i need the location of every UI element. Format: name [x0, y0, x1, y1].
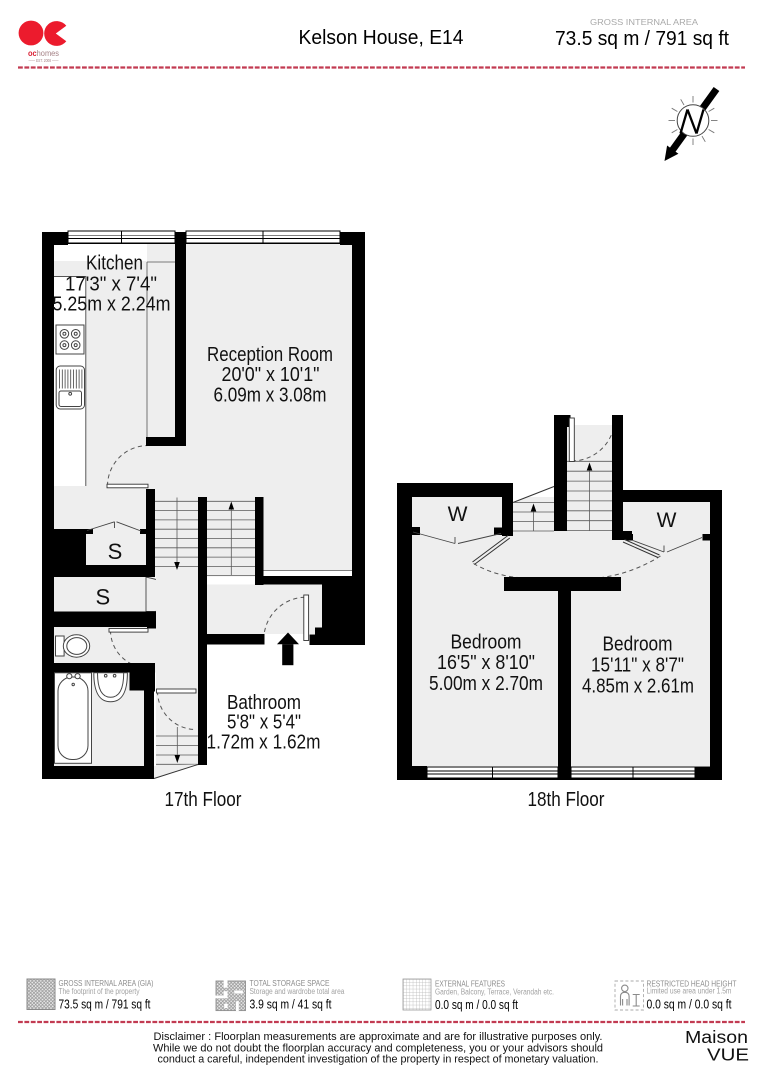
- svg-text:17th Floor: 17th Floor: [165, 789, 242, 811]
- svg-text:Garden, Balcony, Terrace, Vera: Garden, Balcony, Terrace, Verandah etc.: [435, 988, 554, 997]
- svg-text:5.00m x 2.70m: 5.00m x 2.70m: [429, 673, 543, 695]
- svg-text:5'8" x 5'4": 5'8" x 5'4": [227, 712, 301, 734]
- svg-text:Reception Room: Reception Room: [207, 344, 333, 366]
- svg-text:S: S: [95, 585, 110, 610]
- svg-text:5.25m x 2.24m: 5.25m x 2.24m: [53, 294, 171, 316]
- svg-text:4.85m x 2.61m: 4.85m x 2.61m: [582, 676, 694, 698]
- svg-text:The footprint of the property: The footprint of the property: [59, 987, 140, 996]
- svg-text:Storage and wardrobe total are: Storage and wardrobe total area: [250, 987, 346, 996]
- svg-text:S: S: [108, 539, 123, 564]
- svg-text:ochomes: ochomes: [28, 48, 59, 58]
- svg-text:conduct a careful, independent: conduct a careful, independent investiga…: [158, 1054, 599, 1066]
- svg-text:0.0 sq m / 0.0 sq ft: 0.0 sq m / 0.0 sq ft: [647, 997, 732, 1012]
- svg-text:While we do not doubt the floo: While we do not doubt the floorplan accu…: [153, 1042, 603, 1054]
- svg-text:VUE: VUE: [707, 1045, 749, 1065]
- svg-text:3.9 sq m / 41 sq ft: 3.9 sq m / 41 sq ft: [250, 997, 332, 1012]
- svg-text:20'0" x 10'1": 20'0" x 10'1": [222, 364, 320, 386]
- svg-text:Disclaimer : Floorplan measure: Disclaimer : Floorplan measurements are …: [154, 1031, 603, 1043]
- svg-text:Limited use area under 1.5m: Limited use area under 1.5m: [647, 987, 732, 996]
- svg-text:18th Floor: 18th Floor: [528, 789, 605, 811]
- svg-text:Bedroom: Bedroom: [603, 634, 673, 656]
- svg-text:15'11" x 8'7": 15'11" x 8'7": [591, 655, 684, 677]
- svg-text:6.09m x 3.08m: 6.09m x 3.08m: [214, 385, 327, 407]
- svg-text:W: W: [448, 503, 468, 526]
- svg-text:Kelson House, E14: Kelson House, E14: [299, 26, 464, 49]
- svg-text:—— EST. 2008 ——: —— EST. 2008 ——: [29, 58, 59, 63]
- svg-text:73.5 sq m / 791 sq ft: 73.5 sq m / 791 sq ft: [59, 997, 151, 1012]
- svg-text:73.5 sq m / 791 sq ft: 73.5 sq m / 791 sq ft: [555, 28, 729, 50]
- svg-text:0.0 sq m / 0.0 sq ft: 0.0 sq m / 0.0 sq ft: [435, 997, 518, 1012]
- svg-text:Bedroom: Bedroom: [451, 632, 522, 654]
- svg-text:Kitchen: Kitchen: [86, 253, 143, 275]
- svg-text:16'5" x 8'10": 16'5" x 8'10": [437, 652, 535, 674]
- svg-text:W: W: [657, 509, 677, 532]
- svg-text:GROSS INTERNAL AREA: GROSS INTERNAL AREA: [590, 17, 698, 27]
- svg-text:17'3" x 7'4": 17'3" x 7'4": [65, 273, 157, 295]
- svg-text:1.72m x 1.62m: 1.72m x 1.62m: [207, 731, 321, 753]
